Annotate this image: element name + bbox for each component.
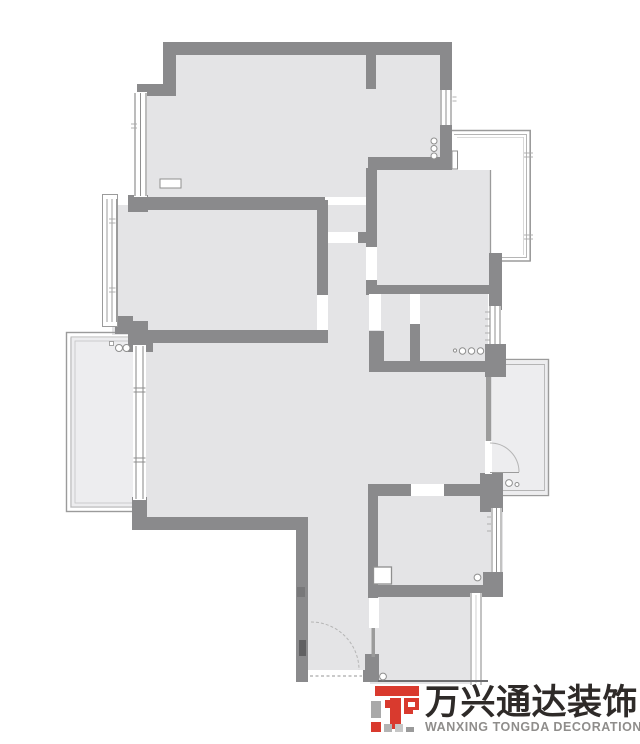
company-logo-mark-icon: [371, 686, 419, 734]
company-name-english: WANXING TONGDA DECORATION: [425, 721, 640, 734]
company-logo: 万兴通达装饰 WANXING TONGDA DECORATION: [371, 686, 640, 734]
floor-plan-svg: [0, 0, 640, 744]
company-name-chinese: 万兴通达装饰: [425, 686, 640, 720]
company-logo-text: 万兴通达装饰 WANXING TONGDA DECORATION: [425, 686, 640, 734]
floor-plan-page: 万兴通达装饰 WANXING TONGDA DECORATION: [0, 0, 640, 744]
